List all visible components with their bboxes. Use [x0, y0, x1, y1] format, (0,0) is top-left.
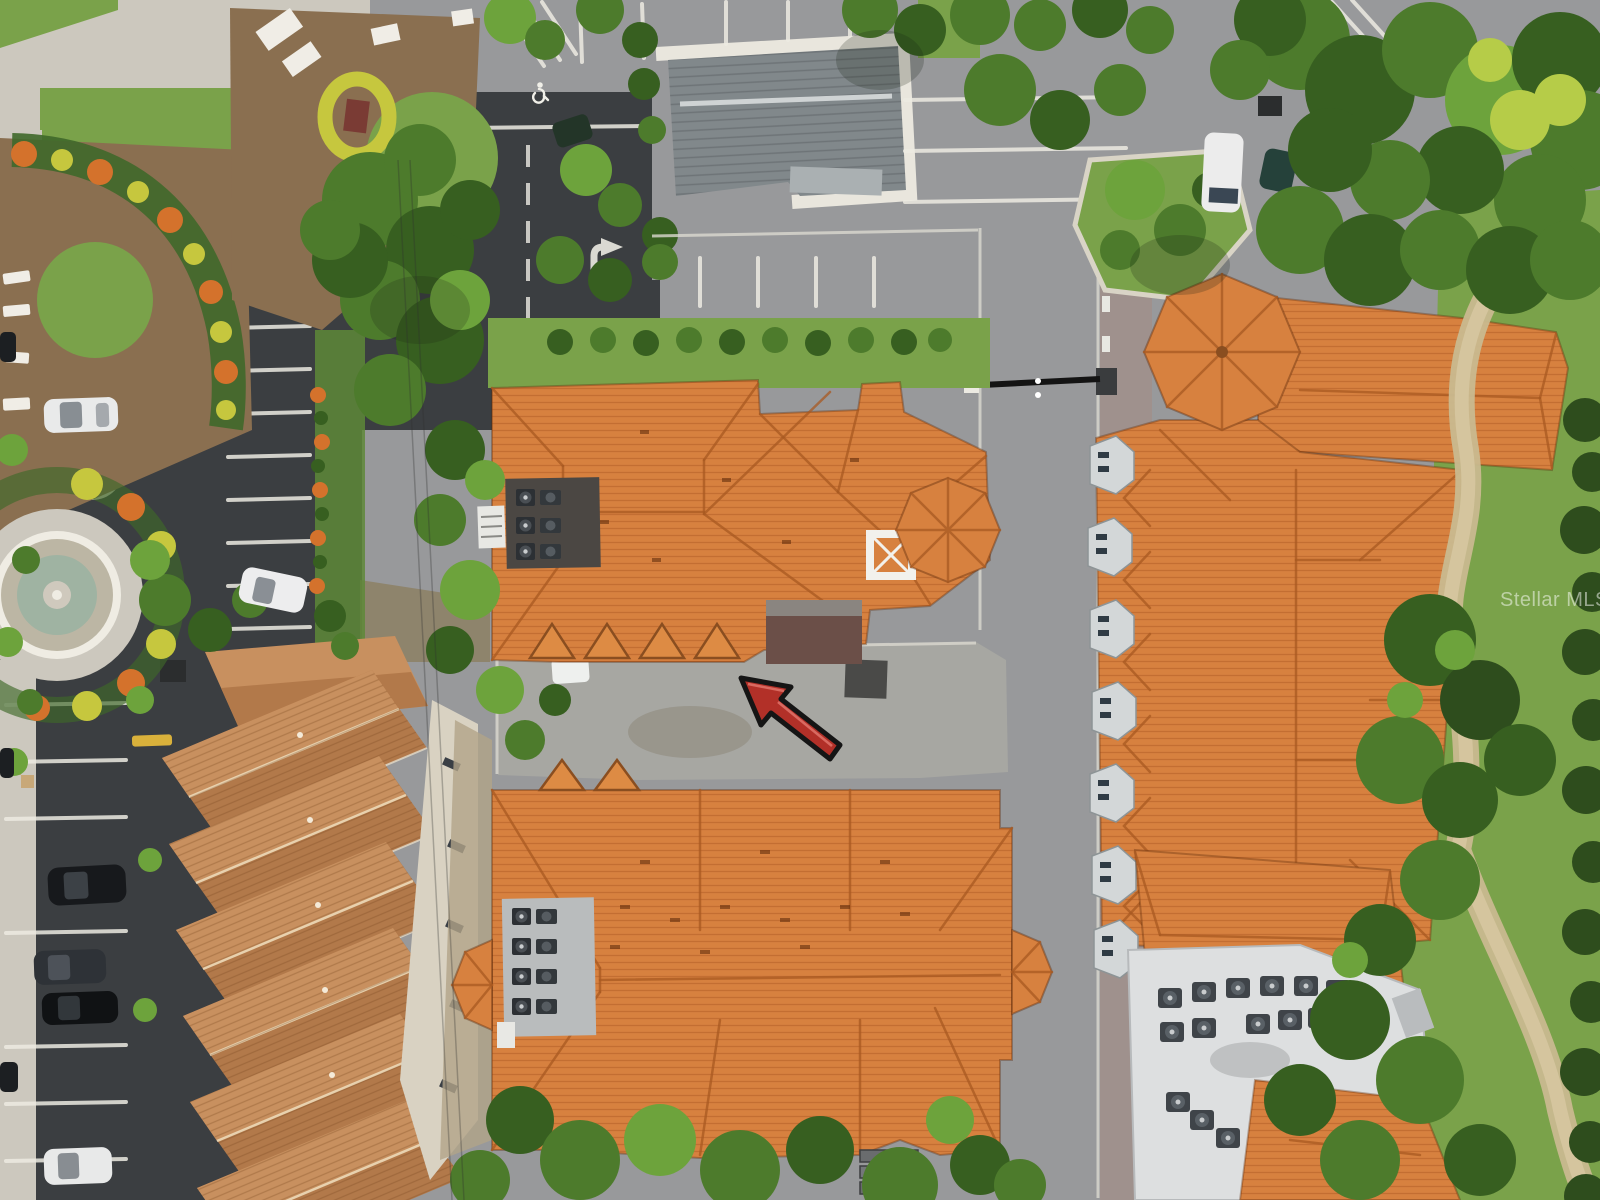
yellow-speed-bump: [132, 734, 172, 746]
black-suv: [47, 864, 127, 906]
hvac-platform-south: [497, 897, 596, 1048]
roof-access: [497, 1022, 515, 1048]
rooftop-tower: [477, 506, 505, 549]
watermark-text: Stellar MLS: [1500, 589, 1600, 611]
pavement-stain: [628, 706, 752, 758]
tree-shadow: [836, 30, 924, 90]
asphalt-patch: [844, 659, 887, 698]
tree-shadow: [1130, 235, 1230, 295]
road-button: [1035, 392, 1041, 398]
aerial-photo: Stellar MLS: [0, 0, 1600, 1200]
east-hedge: [1560, 398, 1600, 1200]
tree-shadow: [370, 276, 470, 344]
hvac-platform-north: [505, 477, 601, 569]
black-sedan: [41, 991, 118, 1026]
white-sedan-upper-left: [43, 397, 118, 434]
north-turret: [896, 478, 1000, 582]
paver-tile: [21, 775, 34, 788]
graphite-suv: [33, 949, 106, 985]
white-sedan-lower-left: [43, 1147, 112, 1185]
partial-car: [0, 332, 16, 362]
garden-grass-patch: [37, 242, 153, 358]
entry-canopy: [790, 166, 883, 195]
east-turret: [1144, 274, 1300, 430]
entry-portico: [766, 600, 862, 664]
left-walk-lower: [0, 660, 36, 1200]
van-windshield: [1209, 187, 1239, 203]
road-button: [1035, 378, 1041, 384]
partial-car: [0, 1062, 18, 1092]
aerial-photo-canvas: Stellar MLS: [0, 0, 1600, 1200]
partial-car: [0, 748, 14, 778]
entry-sign: [343, 99, 370, 134]
drain-grate: [1258, 96, 1282, 116]
